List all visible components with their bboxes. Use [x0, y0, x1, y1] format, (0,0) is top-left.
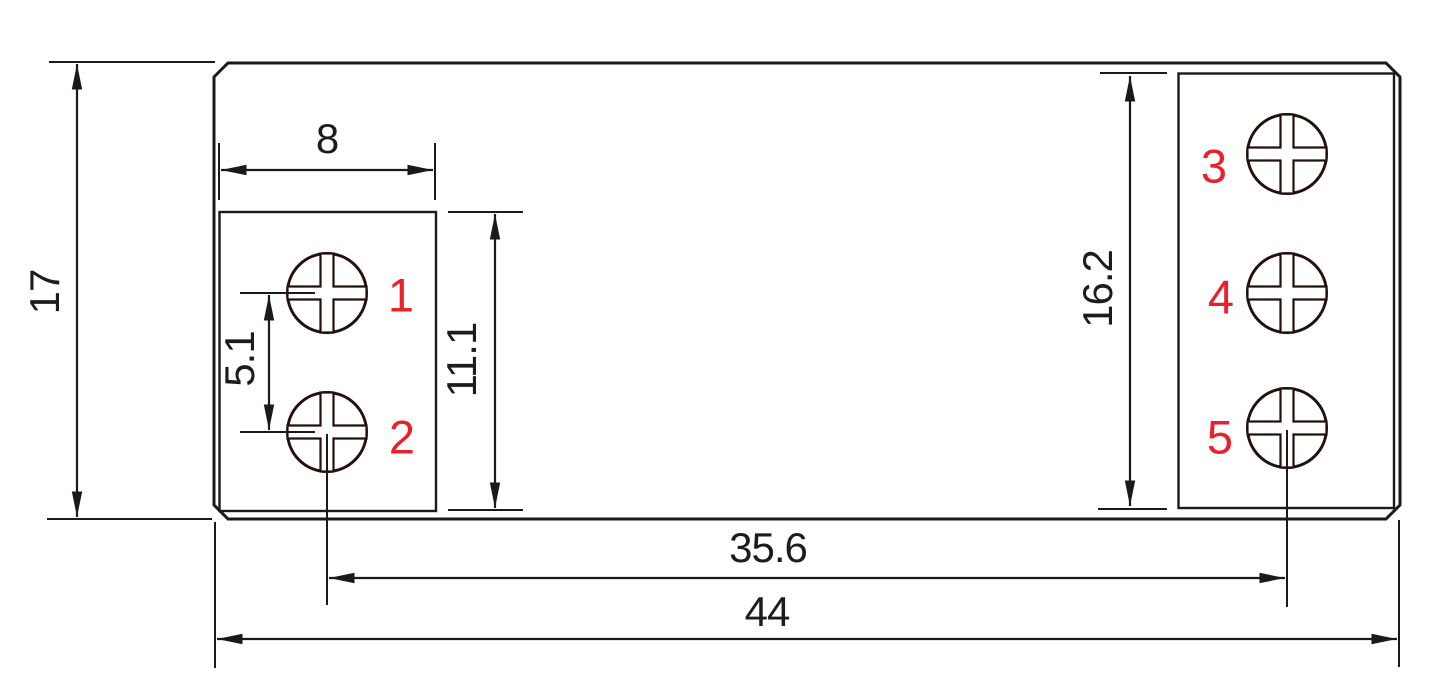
technical-drawing-canvas: 17 8 5.1 11.1 16.2 35.6 44 1 2 3 4 5: [0, 0, 1445, 698]
dim-label-left-box-height: 11.1: [441, 323, 483, 398]
screw-terminal-4: [1248, 254, 1327, 333]
terminal-label-5: 5: [1207, 414, 1233, 461]
dim-label-screw2-to-screw5: 35.6: [729, 527, 807, 569]
terminal-label-1: 1: [388, 272, 414, 319]
screw-terminal-3: [1248, 115, 1327, 194]
dim-label-right-box-height: 16.2: [1077, 250, 1119, 328]
dim-label-total-height: 17: [24, 270, 66, 315]
terminal-label-2: 2: [389, 414, 415, 461]
dim-label-total-width: 44: [745, 591, 790, 633]
dim-label-left-box-width: 8: [316, 118, 338, 160]
dim-label-screw-pitch: 5.1: [219, 331, 261, 386]
terminal-label-4: 4: [1208, 274, 1234, 321]
screw-terminals: [288, 115, 1327, 472]
terminal-label-3: 3: [1201, 143, 1227, 190]
